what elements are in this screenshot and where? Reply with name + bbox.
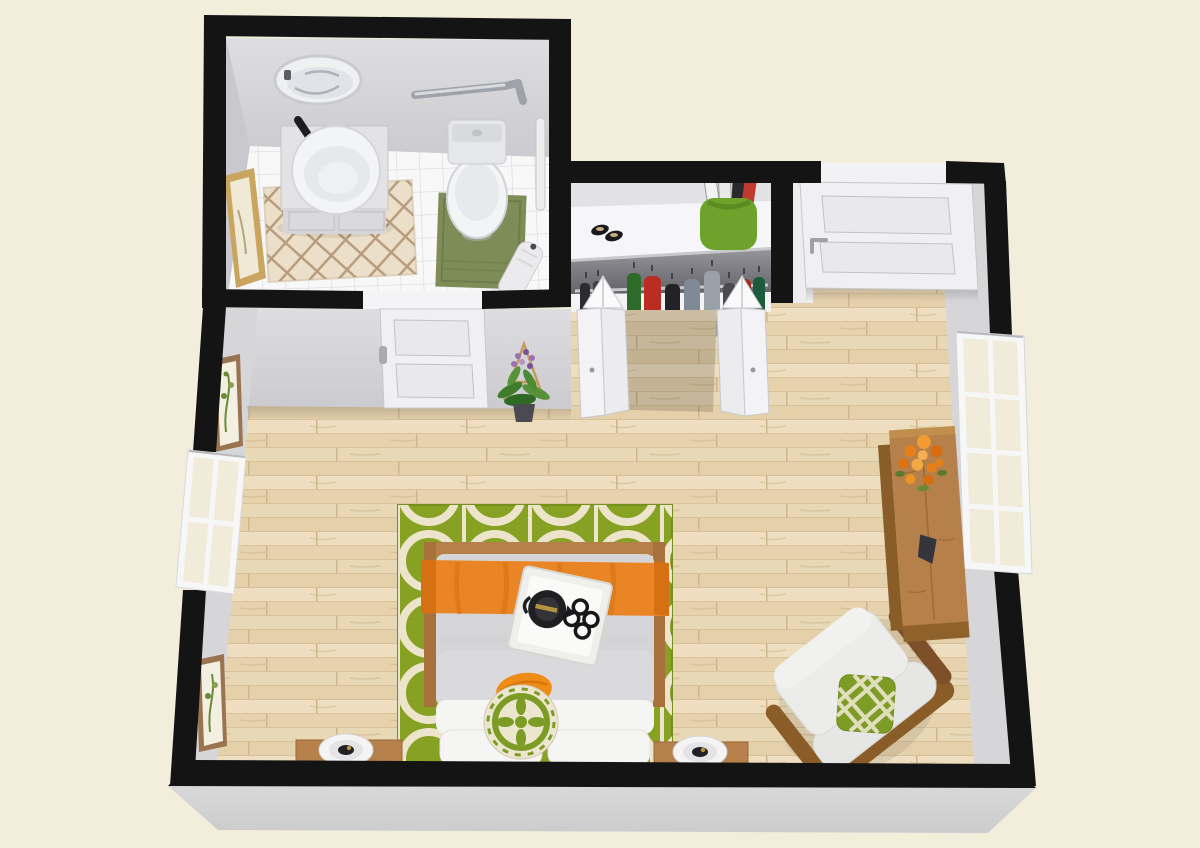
exterior-wall-skirt	[168, 786, 1036, 833]
bed	[421, 542, 669, 766]
closet	[571, 174, 771, 418]
green-medallion-pillow	[484, 685, 558, 759]
entry-door-threshold	[821, 163, 946, 183]
bed-footboard	[424, 542, 665, 556]
grab-bar-vertical-icon	[536, 118, 545, 210]
vanity-door-left	[289, 212, 334, 230]
wall-closet-right	[771, 161, 793, 303]
left-window	[176, 450, 246, 594]
pillow-right	[548, 730, 650, 766]
floor-plan-canvas	[0, 0, 1200, 848]
wall-entry-top-left	[793, 161, 821, 183]
basket-with-magazines	[700, 174, 757, 250]
door-handle-icon	[379, 346, 387, 364]
wall-closet-top	[549, 161, 793, 183]
dresser	[877, 426, 970, 643]
closet-opening-floor	[625, 310, 717, 412]
wall-bottom	[168, 760, 1036, 788]
vanity	[277, 120, 393, 238]
bathroom-door-threshold	[363, 291, 482, 309]
vanity-door-right	[339, 212, 384, 230]
wall-entry-top-right	[946, 161, 1006, 184]
oval-mirror	[275, 56, 361, 104]
vessel-sink-icon	[292, 126, 380, 214]
wall-bath-bottom-left	[202, 289, 363, 309]
wall-bathroom-left	[202, 15, 226, 308]
green-lattice-pillow	[836, 674, 896, 734]
floor-plan-render	[0, 0, 1200, 848]
entry-door	[800, 182, 978, 290]
wall-bathroom-top	[204, 15, 571, 40]
mirror-sconce-icon	[284, 70, 291, 80]
bathroom-door	[379, 309, 488, 408]
right-window	[956, 331, 1032, 574]
plant-pot	[513, 404, 535, 422]
serving-tray	[507, 566, 612, 667]
wall-bath-bottom-right	[482, 289, 571, 309]
bathroom	[224, 38, 571, 307]
flush-button-icon	[472, 130, 482, 137]
toilet	[447, 120, 507, 241]
